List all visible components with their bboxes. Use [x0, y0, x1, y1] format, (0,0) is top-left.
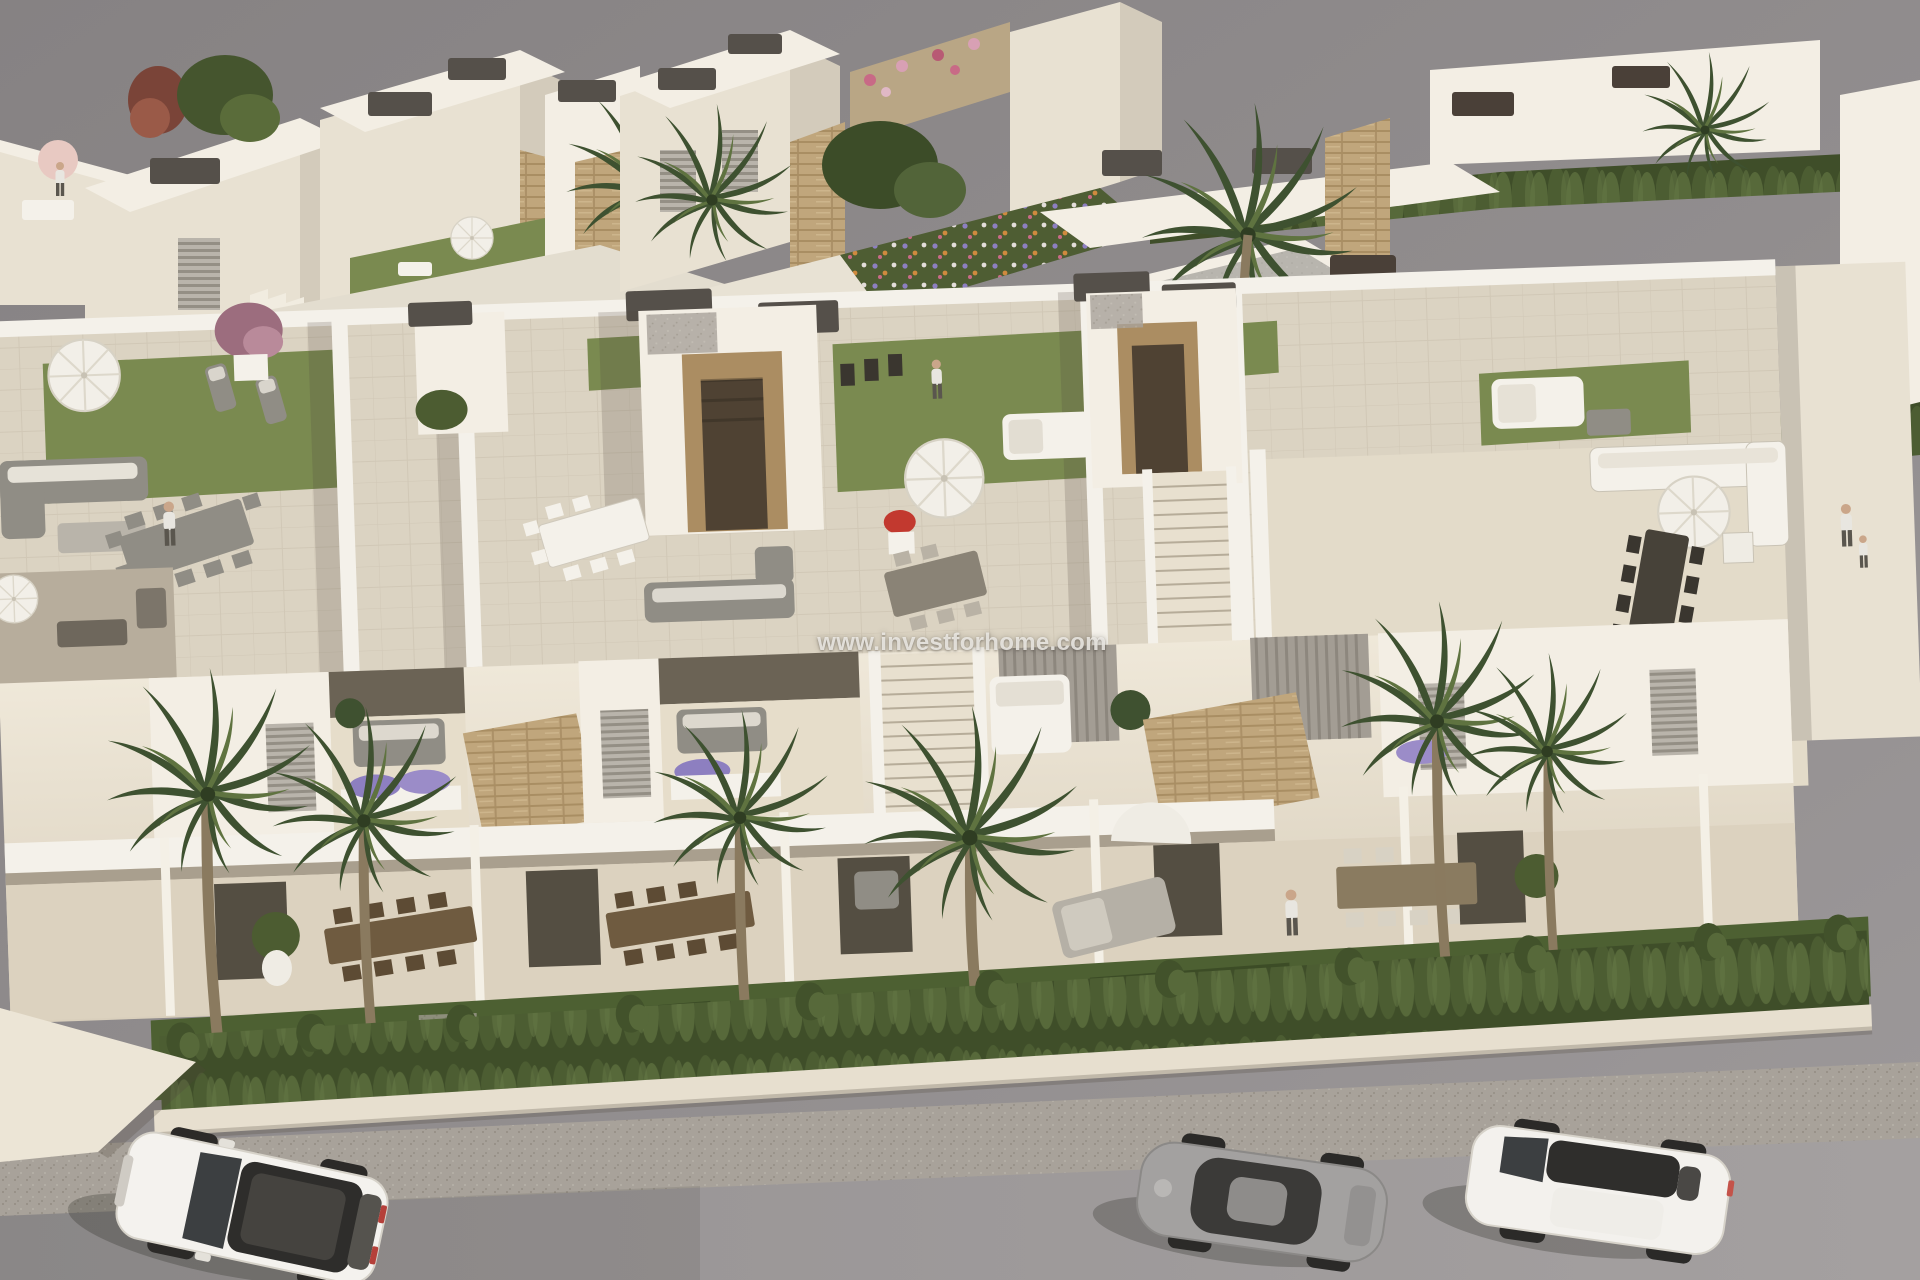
parasol-icon: [451, 217, 493, 259]
balcony-sofa: [352, 718, 446, 767]
louvered-window: [178, 238, 220, 310]
front-townhouse-row: [0, 245, 1920, 1146]
armchair: [854, 870, 899, 910]
scene-canvas: [0, 0, 1920, 1280]
roof-stair-flight: [1142, 466, 1242, 647]
lattice-cube-table: [1723, 532, 1754, 563]
roof-cap: [150, 158, 220, 184]
stair-tower-left: [408, 300, 509, 435]
parasol-icon: [47, 338, 121, 412]
aerial-render: www.investforhome.com: [0, 0, 1920, 1280]
stair-tower-right: [1073, 268, 1242, 489]
left-edge-lower-terrace: [0, 567, 177, 685]
